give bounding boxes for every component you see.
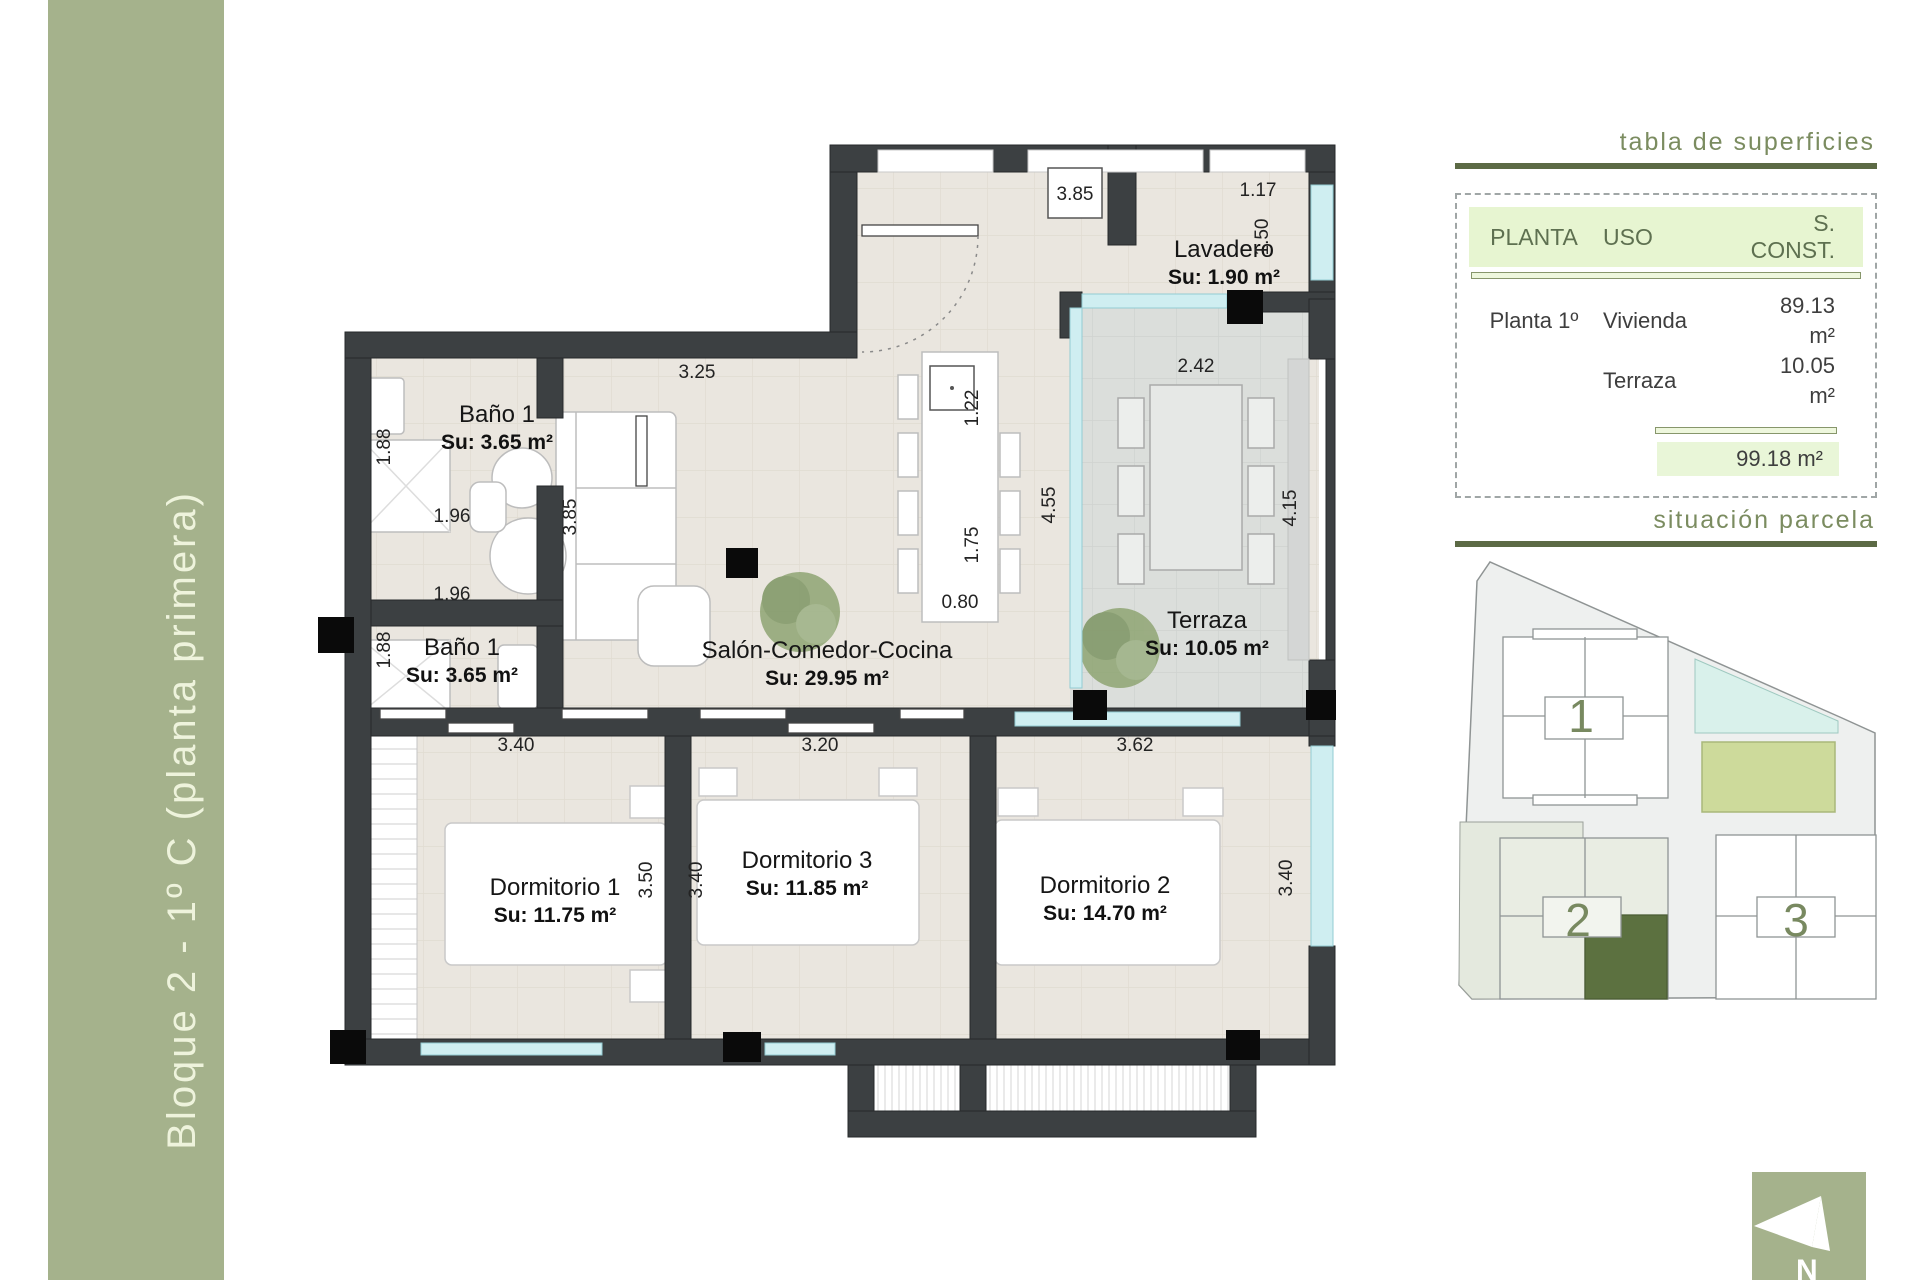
column — [330, 1030, 366, 1064]
dimension-label: 1.17 — [1240, 180, 1277, 201]
wall — [830, 172, 857, 358]
svg-text:Dormitorio 2: Dormitorio 2 — [1040, 872, 1171, 899]
svg-text:Baño 1: Baño 1 — [424, 634, 500, 661]
heading-rule — [1455, 541, 1877, 547]
room-label: Dormitorio 1Su: 11.75 m² — [490, 874, 621, 927]
dimension-label: 0.80 — [942, 592, 979, 613]
window — [878, 150, 993, 172]
lawn — [1702, 742, 1835, 812]
svg-text:Salón-Comedor-Cocina: Salón-Comedor-Cocina — [702, 637, 953, 664]
dimension-label: 3.85 — [1057, 184, 1094, 205]
svg-text:Su: 1.90 m²: Su: 1.90 m² — [1168, 266, 1280, 289]
col-sconst: S. CONST. — [1749, 210, 1863, 264]
sliding-door — [900, 709, 964, 719]
window-glass — [1015, 712, 1240, 726]
window-glass — [1311, 746, 1333, 946]
dimension-label: 3.85 — [560, 499, 581, 536]
entry-door-leaf — [862, 225, 978, 236]
stool — [898, 433, 918, 477]
terrace-table — [1150, 385, 1242, 570]
svg-text:Su: 3.65 m²: Su: 3.65 m² — [406, 664, 518, 687]
stool — [898, 491, 918, 535]
nightstand — [879, 768, 917, 796]
wall — [1309, 299, 1335, 359]
dimension-label: 2.42 — [1178, 356, 1215, 377]
svg-text:Su: 29.95 m²: Su: 29.95 m² — [765, 667, 889, 690]
balcony-bay — [986, 1065, 1230, 1111]
terrace-chair — [1118, 466, 1144, 516]
pool — [1695, 659, 1838, 733]
site-plan-section: situación parcela — [1455, 506, 1877, 547]
site-building-number: 3 — [1783, 894, 1809, 946]
dimension-label: 1.50 — [1252, 219, 1273, 256]
room-label: Dormitorio 3Su: 11.85 m² — [742, 847, 873, 900]
stool — [898, 549, 918, 593]
north-arrow: N — [1752, 1172, 1866, 1280]
dimension-label: 3.62 — [1117, 735, 1154, 756]
window-glass — [765, 1043, 835, 1055]
svg-text:Su: 10.05 m²: Su: 10.05 m² — [1145, 637, 1269, 660]
dimension-label: 3.25 — [679, 362, 716, 383]
cell-sconst: 89.13 m² — [1749, 291, 1863, 351]
armchair — [638, 586, 710, 666]
cell-uso: Terraza — [1599, 366, 1749, 396]
cell-planta: Planta 1º — [1469, 306, 1599, 336]
sliding-door — [380, 709, 446, 719]
column — [1073, 690, 1107, 720]
dimension-label: 3.40 — [1276, 860, 1297, 897]
table-row: Planta 1º Vivienda 89.13 m² — [1469, 291, 1863, 351]
nightstand — [998, 788, 1038, 816]
dimension-label: 4.15 — [1280, 490, 1301, 527]
svg-text:Su: 11.85 m²: Su: 11.85 m² — [746, 877, 869, 900]
dimension-label: 1.96 — [434, 506, 471, 527]
site-plan — [1459, 562, 1876, 999]
site-building-number: 1 — [1568, 690, 1594, 742]
wall — [345, 358, 371, 1065]
table-header-row: PLANTA USO S. CONST. — [1469, 207, 1863, 267]
site-building-number: 2 — [1565, 894, 1591, 946]
wall — [960, 1065, 986, 1111]
wall — [1326, 359, 1335, 660]
window-glass — [1311, 185, 1333, 280]
window-glass — [1070, 308, 1082, 688]
stool — [1000, 491, 1020, 535]
wall — [970, 736, 996, 1039]
nightstand — [630, 970, 666, 1002]
wall — [1309, 946, 1335, 1065]
wall — [537, 358, 563, 418]
total-surface: 99.18 m² — [1657, 442, 1839, 476]
heading-rule — [1455, 163, 1877, 169]
header-rule — [1471, 272, 1861, 279]
subtotal-rule — [1655, 427, 1837, 434]
stool — [1000, 549, 1020, 593]
terrace-chair — [1118, 398, 1144, 448]
cell-sconst: 10.05 m² — [1749, 351, 1863, 411]
nightstand — [1183, 788, 1223, 816]
column — [726, 548, 758, 578]
dimension-label: 1.75 — [962, 527, 983, 564]
table-row: Terraza 10.05 m² — [1469, 351, 1863, 411]
column — [1227, 290, 1263, 324]
nightstand — [699, 768, 737, 796]
column — [723, 1032, 761, 1062]
wall — [345, 332, 857, 358]
surface-table: PLANTA USO S. CONST. Planta 1º Vivienda … — [1455, 193, 1877, 498]
column — [318, 617, 354, 653]
svg-text:Su: 3.65 m²: Su: 3.65 m² — [441, 431, 553, 454]
terrace-chair — [1248, 534, 1274, 584]
cell-uso: Vivienda — [1599, 306, 1749, 336]
svg-text:Dormitorio 1: Dormitorio 1 — [490, 874, 621, 901]
dimension-label: 3.20 — [802, 735, 839, 756]
wall — [1309, 736, 1335, 746]
wardrobe — [371, 736, 417, 1039]
room-label: Dormitorio 2Su: 14.70 m² — [1040, 872, 1171, 925]
terrace-chair — [1248, 398, 1274, 448]
window — [1210, 150, 1305, 172]
terrace-chair — [1248, 466, 1274, 516]
dimension-label: 1.22 — [962, 390, 983, 427]
window-glass — [421, 1043, 602, 1055]
toilet — [470, 482, 506, 532]
stool — [898, 375, 918, 419]
dimension-label: 3.40 — [498, 735, 535, 756]
dimension-label: 4.55 — [1039, 487, 1060, 524]
window-glass — [1082, 294, 1227, 308]
page: Bloque 2 - 1º C (planta primera) — [0, 0, 1920, 1280]
terrace-chair — [1118, 534, 1144, 584]
north-label: N — [1796, 1254, 1818, 1280]
sliding-door — [788, 723, 874, 733]
column — [1226, 1030, 1260, 1060]
stool — [1000, 433, 1020, 477]
door-leaf — [636, 416, 647, 486]
cooktop-dot — [950, 386, 954, 390]
wall — [848, 1111, 1256, 1137]
sliding-door — [562, 709, 648, 719]
site-plan-heading: situación parcela — [1455, 506, 1875, 535]
column — [1306, 690, 1336, 720]
sliding-door — [700, 709, 786, 719]
dimension-label: 3.40 — [686, 862, 707, 899]
svg-text:Su: 14.70 m²: Su: 14.70 m² — [1043, 902, 1167, 925]
svg-text:Dormitorio 3: Dormitorio 3 — [742, 847, 873, 874]
col-planta: PLANTA — [1469, 224, 1599, 251]
sliding-door — [448, 723, 514, 733]
nightstand — [630, 786, 666, 818]
surface-table-section: tabla de superficies PLANTA USO S. CONST… — [1455, 128, 1877, 498]
svg-text:Terraza: Terraza — [1167, 607, 1248, 634]
surface-table-heading: tabla de superficies — [1455, 128, 1875, 157]
dimension-label: 1.96 — [434, 584, 471, 605]
svg-text:Baño 1: Baño 1 — [459, 401, 535, 428]
dimension-label: 3.50 — [636, 862, 657, 899]
dimension-label: 1.88 — [374, 429, 395, 466]
svg-text:Su: 11.75 m²: Su: 11.75 m² — [494, 904, 617, 927]
col-uso: USO — [1599, 224, 1749, 251]
wall — [1230, 1065, 1256, 1111]
dimension-label: 1.88 — [374, 632, 395, 669]
balcony-bay — [874, 1065, 960, 1111]
